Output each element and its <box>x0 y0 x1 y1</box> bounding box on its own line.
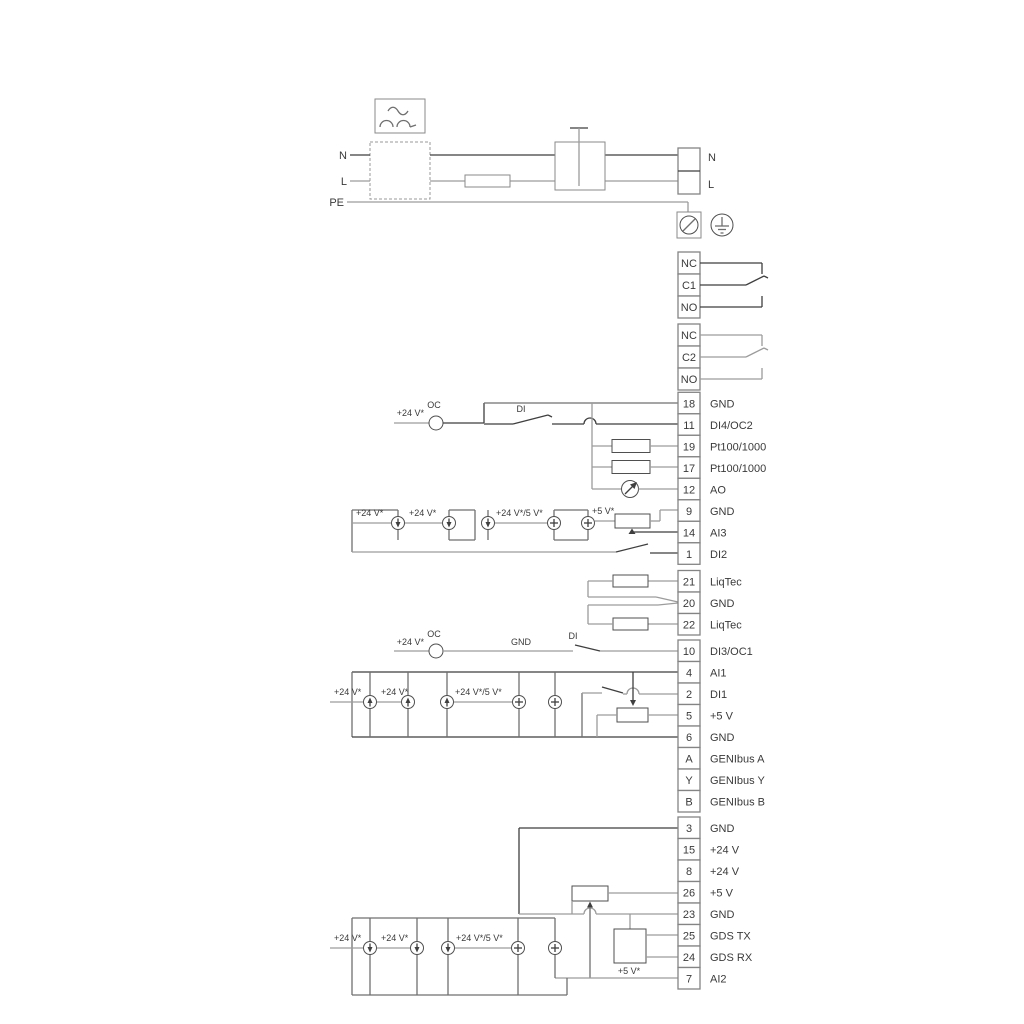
relay2-contacts <box>700 335 768 379</box>
terminal-label: GND <box>710 732 735 744</box>
oc-open-collector-symbol <box>429 644 443 658</box>
terminal-number: A <box>685 754 693 766</box>
input-module-box <box>370 142 430 199</box>
terminal-number: 23 <box>683 909 695 921</box>
annotation-di: DI <box>517 404 526 414</box>
terminal-number: 4 <box>686 668 692 680</box>
terminal-row: 4AI1 <box>678 662 727 684</box>
liqtec-sensor-2 <box>588 603 678 630</box>
annotation-24v: +24 V* <box>381 933 409 943</box>
liqtec-circuit <box>588 575 678 630</box>
terminal-number: 2 <box>686 689 692 701</box>
di2-switch <box>616 544 678 553</box>
annotation-24v: +24 V* <box>397 408 425 418</box>
terminal-label: GDS RX <box>710 952 753 964</box>
groupA-circuit: +24 V* OC DI <box>394 400 678 498</box>
terminal-number: Y <box>685 775 693 787</box>
terminal-label: AI2 <box>710 974 727 986</box>
terminal-row: 9GND <box>678 500 735 522</box>
annotation-24v: +24 V* <box>334 687 362 697</box>
fuse <box>465 175 510 187</box>
relay1-no: NO <box>681 302 698 314</box>
power-n-label: N <box>339 150 347 162</box>
terminal-number: 8 <box>686 866 692 878</box>
di4-switch <box>484 415 678 424</box>
terminal-label: GENIbus B <box>710 797 765 809</box>
annotation-oc: OC <box>427 629 441 639</box>
terminal-label: GND <box>710 823 735 835</box>
terminal-number: 25 <box>683 931 695 943</box>
terminal-row: 1DI2 <box>678 543 727 565</box>
n-wire <box>350 147 678 155</box>
terminal-number: 20 <box>683 598 695 610</box>
terminal-label: +24 V <box>710 845 740 857</box>
terminal-group-c: 10DI3/OC1 4AI1 2DI1 5+5 V 6GND AGENIbus … <box>678 640 765 812</box>
terminal-label: GND <box>710 506 735 518</box>
terminal-group-b: 21LiqTec 20GND 22LiqTec <box>678 571 742 636</box>
relay2-c2: C2 <box>682 352 696 364</box>
terminal-label: +5 V <box>710 888 734 900</box>
relay1-nc: NC <box>681 258 697 270</box>
terminal-row: 20GND <box>678 592 735 614</box>
terminal-row: 19Pt100/1000 <box>678 435 766 457</box>
di3-switch <box>575 645 678 651</box>
terminal-group-d: 3GND 15+24 V 8+24 V 26+5 V 23GND 25GDS T… <box>678 817 753 989</box>
groupC-circuit: +24 V* OC GND DI +24 V* +24 V* +24 V*/5 … <box>330 629 678 737</box>
terminal-label: AI3 <box>710 528 727 540</box>
annotation-24v-5v: +24 V*/5 V* <box>456 933 503 943</box>
terminal-label: GND <box>710 598 735 610</box>
l-wire <box>350 173 678 181</box>
terminal-label: DI2 <box>710 549 727 561</box>
terminal-label: GDS TX <box>710 931 751 943</box>
terminal-n-label: N <box>708 152 716 164</box>
annotation-gnd: GND <box>511 637 532 647</box>
terminal-row: 3GND <box>678 817 735 839</box>
potentiometer-ai1 <box>597 672 678 737</box>
terminal-number: 18 <box>683 399 695 411</box>
groupD-circuit: +5 V* +24 V* +24 V* +24 V*/5 V* <box>330 828 678 995</box>
terminal-label: Pt100/1000 <box>710 442 766 454</box>
terminal-number: 12 <box>683 485 695 497</box>
pe-screw-terminal-icon <box>677 212 701 238</box>
diagram-canvas: N L PE <box>0 0 1024 1024</box>
annotation-24v: +24 V* <box>397 637 425 647</box>
terminal-label: DI3/OC1 <box>710 646 753 658</box>
relay2-no: NO <box>681 374 698 386</box>
relay2-block: NC C2 NO <box>678 324 768 390</box>
terminal-number: 17 <box>683 463 695 475</box>
terminal-row: 26+5 V <box>678 882 734 904</box>
terminal-row: 24GDS RX <box>678 946 753 968</box>
terminal-number: 9 <box>686 506 692 518</box>
annotation-5v: +5 V* <box>592 506 615 516</box>
source-options-3: +24 V* +24 V* +24 V*/5 V* <box>330 918 567 995</box>
terminal-row: 10DI3/OC1 <box>678 640 753 662</box>
wiring-diagram: N L PE <box>0 0 1024 1024</box>
terminal-number: 15 <box>683 845 695 857</box>
annotation-di: DI <box>569 631 578 641</box>
terminal-row: 6GND <box>678 726 735 748</box>
terminal-row: 22LiqTec <box>678 614 742 636</box>
pt100-sensor-1 <box>592 440 678 453</box>
terminal-label: AO <box>710 485 726 497</box>
source-options-1: +24 V* +24 V* +24 V*/5 V* +5 V* <box>352 506 678 553</box>
terminal-row: 5+5 V <box>678 705 734 727</box>
relay1-c1: C1 <box>682 280 696 292</box>
terminal-label: GENIbus Y <box>710 775 765 787</box>
pt100-sensor-2 <box>592 461 678 474</box>
terminal-label: LiqTec <box>710 577 742 589</box>
terminal-label: GENIbus A <box>710 754 765 766</box>
terminal-row: 23GND <box>678 903 735 925</box>
annotation-24v: +24 V* <box>334 933 362 943</box>
terminal-number: 24 <box>683 952 695 964</box>
terminal-row: 2DI1 <box>678 683 727 705</box>
current-source-up-icon <box>364 696 454 709</box>
annotation-24v-5v: +24 V*/5 V* <box>496 508 543 518</box>
terminal-row: BGENIbus B <box>678 791 765 813</box>
relay2-nc: NC <box>681 330 697 342</box>
terminal-row: 12AO <box>678 478 726 500</box>
terminal-row: 14AI3 <box>678 521 727 543</box>
ac-supply-icon <box>375 99 425 133</box>
terminal-label: +5 V <box>710 711 734 723</box>
voltage-source-icon <box>513 696 562 709</box>
annotation-5v: +5 V* <box>618 966 641 976</box>
terminal-row: YGENIbus Y <box>678 769 765 791</box>
oc-open-collector-symbol <box>429 416 443 430</box>
power-section: N L PE <box>329 99 733 238</box>
terminal-number: 10 <box>683 646 695 658</box>
annotation-24v: +24 V* <box>409 508 437 518</box>
mains-terminal-block: N L <box>678 148 716 194</box>
terminal-row: 21LiqTec <box>678 571 742 593</box>
pe-wire <box>347 202 688 212</box>
terminal-number: 26 <box>683 888 695 900</box>
terminal-label: GND <box>710 399 735 411</box>
terminal-group-a: 18GND 11DI4/OC2 19Pt100/1000 17Pt100/100… <box>678 392 766 564</box>
relay1-contacts <box>700 263 768 307</box>
terminal-label: DI4/OC2 <box>710 420 753 432</box>
power-pe-label: PE <box>329 197 344 209</box>
potentiometer-ai3 <box>615 510 678 534</box>
terminal-number: 5 <box>686 711 692 723</box>
main-switch <box>555 128 605 190</box>
terminal-label: DI1 <box>710 689 727 701</box>
terminal-number: 3 <box>686 823 692 835</box>
terminal-label: AI1 <box>710 668 727 680</box>
terminal-row: 17Pt100/1000 <box>678 457 766 479</box>
annotation-oc: OC <box>427 400 441 410</box>
terminal-number: 6 <box>686 732 692 744</box>
terminal-row: 11DI4/OC2 <box>678 414 753 436</box>
annotation-24v-5v: +24 V*/5 V* <box>455 687 502 697</box>
liqtec-sensor-1 <box>588 575 678 602</box>
gds-module: +5 V* <box>614 914 678 976</box>
earth-icon <box>711 214 733 236</box>
power-l-label: L <box>341 176 347 188</box>
terminal-number: 22 <box>683 620 695 632</box>
terminal-l-label: L <box>708 179 714 191</box>
relay1-block: NC C1 NO <box>678 252 768 318</box>
terminal-row: 25GDS TX <box>678 925 751 947</box>
voltage-source-icon <box>548 517 595 530</box>
terminal-row: AGENIbus A <box>678 748 765 770</box>
terminal-number: 1 <box>686 549 692 561</box>
terminal-number: 19 <box>683 442 695 454</box>
terminal-number: B <box>685 797 692 809</box>
terminal-number: 14 <box>683 528 695 540</box>
terminal-label: GND <box>710 909 735 921</box>
annotation-24v: +24 V* <box>381 687 409 697</box>
analog-output-meter-icon <box>592 481 678 498</box>
terminal-label: LiqTec <box>710 620 742 632</box>
terminal-label: Pt100/1000 <box>710 463 766 475</box>
terminal-number: 11 <box>683 420 694 432</box>
terminal-row: 18GND <box>678 392 735 414</box>
voltage-source-icon <box>512 942 562 955</box>
annotation-24v: +24 V* <box>356 508 384 518</box>
terminal-label: +24 V <box>710 866 740 878</box>
terminal-row: 7AI2 <box>678 968 727 990</box>
terminal-number: 7 <box>686 974 692 986</box>
terminal-row: 8+24 V <box>678 860 740 882</box>
terminal-row: 15+24 V <box>678 839 740 861</box>
terminal-number: 21 <box>683 577 695 589</box>
